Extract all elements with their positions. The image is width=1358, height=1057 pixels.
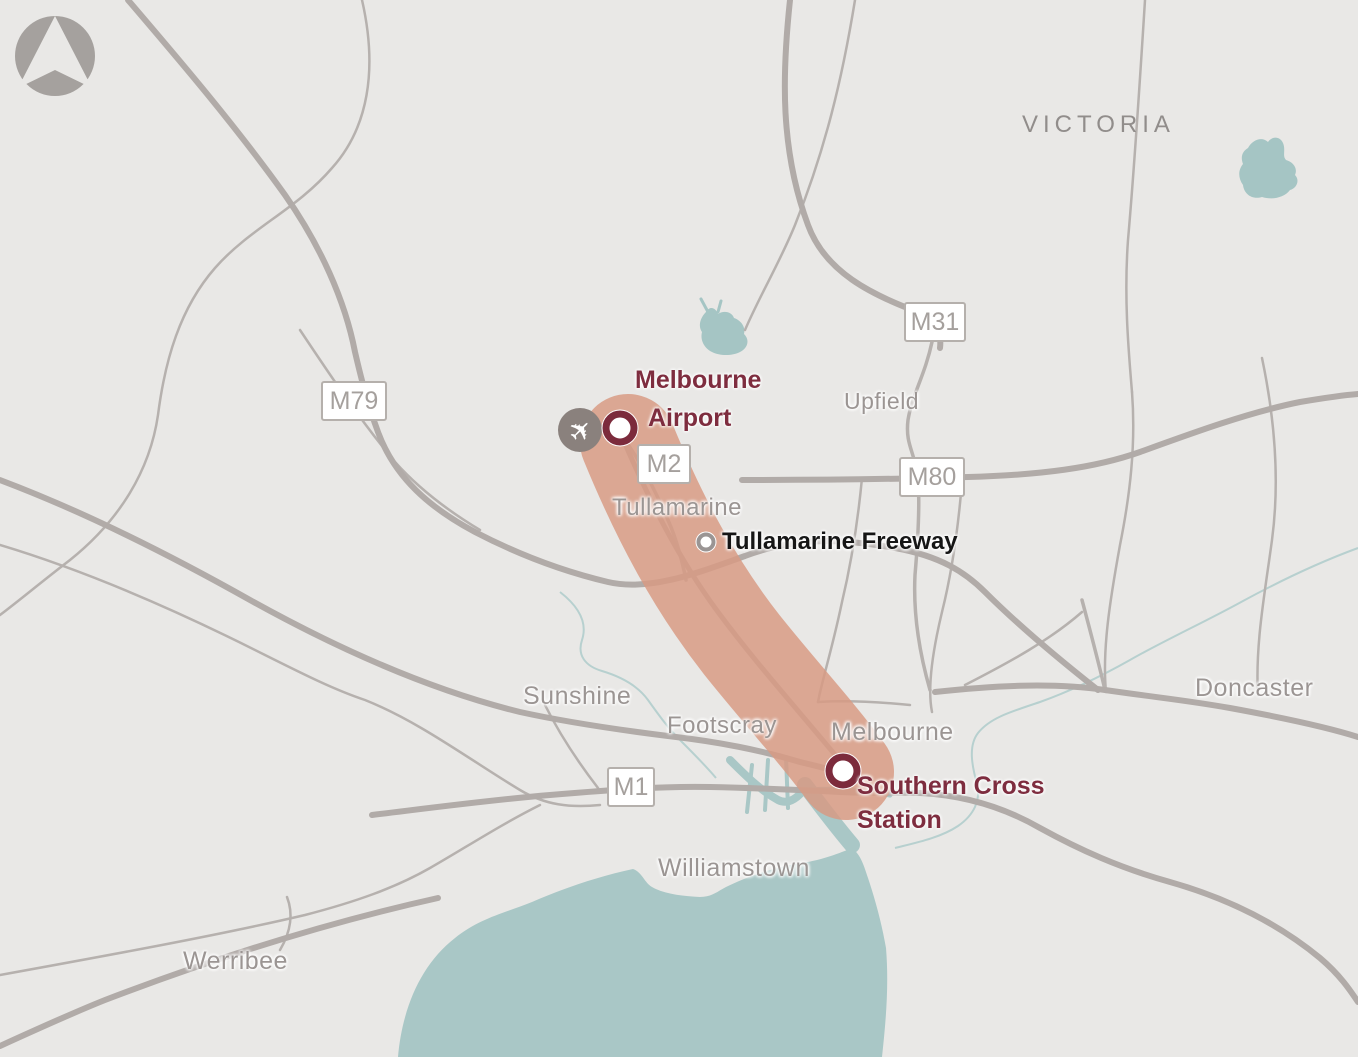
map-canvas[interactable]: ✈ VICTORIA Tullamarine Upfield Sunshine … [0, 0, 1358, 1057]
road-shield-m79: M79 [321, 381, 387, 421]
station-label-line1: Southern Cross [857, 772, 1045, 801]
road-shield-m2: M2 [637, 444, 691, 484]
place-label-doncaster: Doncaster [1195, 674, 1313, 703]
airport-label-line1: Melbourne [635, 366, 761, 395]
hume-freeway [785, 0, 941, 348]
lake-northeast [1239, 138, 1297, 199]
place-label-werribee: Werribee [183, 947, 288, 976]
place-label-melbourne: Melbourne [831, 718, 954, 747]
tullamarine-freeway-marker[interactable] [696, 532, 717, 553]
pond-tullamarine [700, 308, 748, 355]
bay-water [398, 848, 887, 1057]
compass-icon [15, 16, 95, 96]
southern-cross-marker[interactable] [825, 753, 862, 790]
region-label-victoria: VICTORIA [1022, 111, 1175, 139]
airport-marker[interactable] [602, 410, 639, 447]
place-label-sunshine: Sunshine [523, 682, 631, 711]
place-label-upfield: Upfield [844, 388, 919, 415]
road-shield-m80: M80 [899, 457, 965, 497]
station-label-line2: Station [857, 806, 942, 835]
place-label-tullamarine: Tullamarine [612, 494, 742, 522]
airport-label-line2: Airport [648, 404, 731, 433]
place-label-williamstown: Williamstown [658, 854, 810, 883]
water-layer [398, 138, 1358, 1057]
calder-freeway [128, 0, 1098, 690]
road-shield-m1: M1 [607, 767, 655, 807]
map-geometry: ✈ [0, 0, 1358, 1057]
airplane-icon: ✈ [558, 408, 602, 452]
place-label-footscray: Footscray [667, 712, 777, 740]
tullamarine-freeway-label: Tullamarine Freeway [722, 528, 958, 556]
road-shield-m31: M31 [904, 302, 966, 342]
ring-road [742, 394, 1358, 480]
